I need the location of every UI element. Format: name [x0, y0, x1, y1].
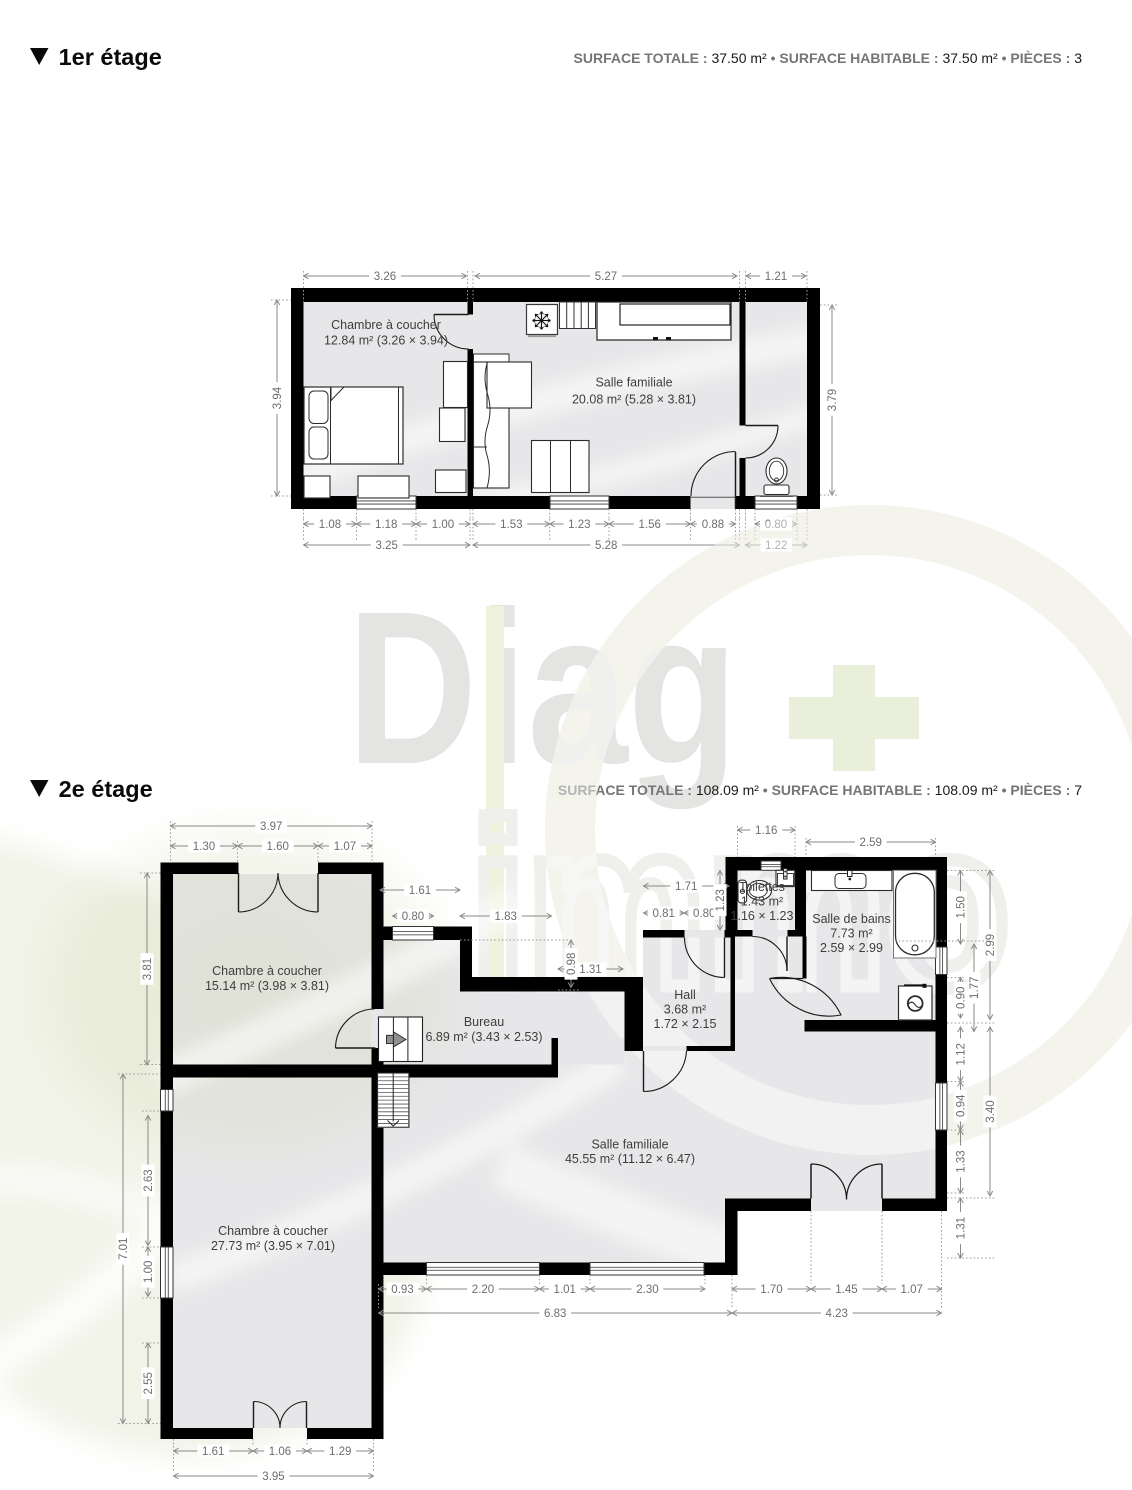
svg-text:1.50: 1.50 [956, 896, 968, 918]
svg-text:3.26: 3.26 [374, 271, 396, 283]
svg-text:1.53: 1.53 [500, 519, 522, 531]
svg-text:1.71: 1.71 [675, 881, 697, 893]
svg-text:3.25: 3.25 [376, 540, 398, 552]
svg-text:7.73 m²: 7.73 m² [830, 927, 872, 941]
svg-text:1.23: 1.23 [568, 519, 590, 531]
svg-text:1.16 × 1.23: 1.16 × 1.23 [731, 909, 794, 923]
svg-text:1.61: 1.61 [409, 885, 431, 897]
svg-text:0.80: 0.80 [693, 908, 715, 920]
svg-text:1.70: 1.70 [760, 1284, 782, 1296]
svg-text:0.80: 0.80 [402, 911, 424, 923]
svg-text:1.60: 1.60 [267, 841, 289, 853]
svg-text:7.01: 7.01 [118, 1238, 130, 1260]
svg-text:1.08: 1.08 [319, 519, 341, 531]
svg-text:1.01: 1.01 [554, 1284, 576, 1296]
svg-text:1.33: 1.33 [956, 1150, 968, 1172]
svg-text:Chambre à coucher: Chambre à coucher [212, 964, 322, 978]
svg-text:SURFACE TOTALE : 37.50 m² • SU: SURFACE TOTALE : 37.50 m² • SURFACE HABI… [574, 50, 1083, 66]
svg-text:3.81: 3.81 [142, 958, 154, 980]
svg-text:1.30: 1.30 [193, 841, 215, 853]
svg-text:Chambre à coucher: Chambre à coucher [331, 318, 441, 332]
svg-text:1.29: 1.29 [329, 1446, 351, 1458]
svg-text:0.94: 0.94 [956, 1094, 968, 1117]
svg-text:15.14 m² (3.98 × 3.81): 15.14 m² (3.98 × 3.81) [205, 979, 329, 993]
svg-text:1.07: 1.07 [334, 841, 356, 853]
svg-text:12.84 m² (3.26 × 3.94): 12.84 m² (3.26 × 3.94) [324, 334, 448, 348]
svg-text:1.77: 1.77 [969, 977, 981, 999]
svg-text:Bureau: Bureau [464, 1015, 504, 1029]
svg-text:Salle de bains: Salle de bains [812, 912, 891, 926]
svg-text:Hall: Hall [674, 988, 696, 1002]
svg-text:0.81: 0.81 [653, 908, 675, 920]
svg-text:1.18: 1.18 [375, 519, 397, 531]
svg-text:1.00: 1.00 [143, 1261, 155, 1283]
svg-text:20.08 m² (5.28 × 3.81): 20.08 m² (5.28 × 3.81) [572, 393, 696, 407]
svg-text:3.68 m²: 3.68 m² [664, 1003, 706, 1017]
svg-text:3.97: 3.97 [260, 821, 282, 833]
svg-text:1.31: 1.31 [579, 964, 601, 976]
svg-text:2.63: 2.63 [143, 1169, 155, 1191]
svg-text:1.12: 1.12 [956, 1043, 968, 1065]
svg-text:2.30: 2.30 [636, 1284, 658, 1296]
svg-text:2.59 × 2.99: 2.59 × 2.99 [820, 941, 883, 955]
svg-text:1.16: 1.16 [755, 825, 777, 837]
svg-text:6.89 m² (3.43 × 2.53): 6.89 m² (3.43 × 2.53) [425, 1030, 542, 1044]
svg-text:Chambre à coucher: Chambre à coucher [218, 1224, 328, 1238]
svg-text:Salle familiale: Salle familiale [595, 376, 672, 390]
svg-text:2.99: 2.99 [985, 934, 997, 956]
svg-text:1.31: 1.31 [956, 1217, 968, 1239]
svg-text:2.55: 2.55 [143, 1372, 155, 1394]
svg-text:6.83: 6.83 [544, 1308, 566, 1320]
svg-text:3.94: 3.94 [272, 386, 284, 409]
svg-text:5.27: 5.27 [595, 271, 617, 283]
svg-text:1.56: 1.56 [639, 519, 661, 531]
svg-text:3.40: 3.40 [985, 1100, 997, 1122]
svg-text:45.55 m² (11.12 × 6.47): 45.55 m² (11.12 × 6.47) [565, 1152, 695, 1166]
svg-text:1.83: 1.83 [495, 911, 517, 923]
svg-text:Toilettes: Toilettes [739, 880, 785, 894]
svg-text:1.06: 1.06 [269, 1446, 291, 1458]
svg-text:2.20: 2.20 [472, 1284, 494, 1296]
svg-text:0.88: 0.88 [702, 519, 724, 531]
svg-text:1.45: 1.45 [835, 1284, 857, 1296]
svg-text:1.61: 1.61 [202, 1446, 224, 1458]
svg-text:0.98: 0.98 [566, 953, 578, 975]
svg-text:27.73 m² (3.95 × 7.01): 27.73 m² (3.95 × 7.01) [211, 1239, 335, 1253]
svg-text:1.07: 1.07 [901, 1284, 923, 1296]
svg-text:3.79: 3.79 [827, 389, 839, 411]
svg-text:0.90: 0.90 [956, 987, 968, 1009]
svg-text:1.43 m²: 1.43 m² [741, 895, 783, 909]
svg-text:1.00: 1.00 [432, 519, 454, 531]
svg-text:4.23: 4.23 [826, 1308, 848, 1320]
svg-text:1.23: 1.23 [715, 889, 727, 911]
svg-text:2.59: 2.59 [860, 837, 882, 849]
svg-text:1.72 × 2.15: 1.72 × 2.15 [654, 1017, 717, 1031]
svg-text:1.21: 1.21 [765, 271, 787, 283]
svg-text:1er étage: 1er étage [59, 44, 162, 70]
svg-text:Salle familiale: Salle familiale [591, 1138, 668, 1152]
svg-text:3.95: 3.95 [262, 1471, 284, 1483]
svg-text:0.93: 0.93 [391, 1284, 413, 1296]
svg-text:2e étage: 2e étage [59, 776, 153, 802]
svg-text:5.28: 5.28 [595, 540, 617, 552]
